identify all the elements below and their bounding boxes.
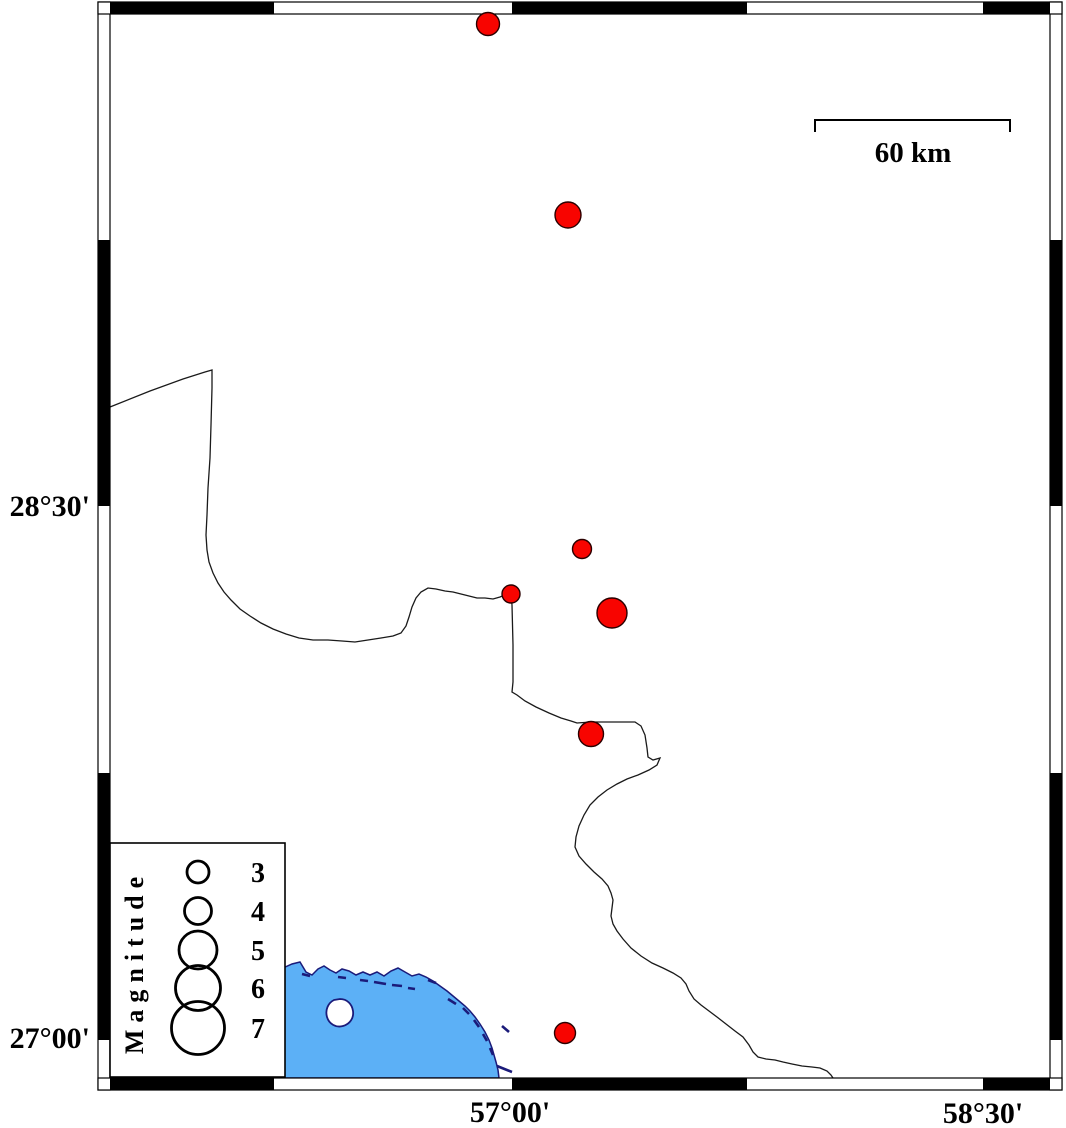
water-polygon [283, 962, 499, 1078]
earthquake-marker [579, 722, 604, 747]
coast-dash [338, 977, 346, 978]
coast-dash [408, 988, 415, 989]
frame-black-segment [512, 1078, 747, 1090]
legend-value: 6 [251, 974, 265, 1005]
earthquake-marker [555, 1023, 576, 1044]
scale-bar-bracket [815, 120, 1010, 132]
magnitude-legend: Magnitude 34567 [110, 843, 285, 1077]
legend-value: 7 [251, 1014, 265, 1045]
legend-value: 5 [251, 936, 265, 967]
water-group [283, 962, 512, 1078]
earthquake-markers [477, 13, 628, 1044]
earthquake-marker [555, 202, 581, 228]
frame-black-segment [512, 2, 747, 14]
map-figure: 60 km Magnitude 34567 28°30' 27°00' 57°0… [0, 0, 1066, 1128]
frame-black-segment [98, 773, 110, 1040]
legend-title: Magnitude [120, 870, 149, 1054]
frame-black-segment [983, 1078, 1050, 1090]
coast-dash [497, 1066, 512, 1072]
map-canvas: 60 km Magnitude 34567 28°30' 27°00' 57°0… [0, 0, 1066, 1128]
coast-dash [392, 985, 402, 986]
frame-black-segment [98, 240, 110, 506]
legend-value: 4 [251, 897, 265, 928]
island [326, 999, 353, 1027]
frame-black-segment [1050, 773, 1062, 1040]
frame-black-segment [983, 2, 1050, 14]
frame-black-segment [110, 1078, 274, 1090]
coast-dash [360, 980, 368, 981]
lon-label-5700: 57°00' [470, 1096, 550, 1128]
coast-dash [502, 1026, 509, 1032]
lat-label-2830: 28°30' [10, 490, 90, 523]
scale-bar: 60 km [815, 120, 1010, 169]
earthquake-marker [502, 585, 520, 603]
frame-black-segment [110, 2, 274, 14]
scale-bar-label: 60 km [875, 137, 952, 169]
lat-label-2700: 27°00' [10, 1022, 90, 1055]
earthquake-marker [573, 540, 592, 559]
legend-value: 3 [251, 858, 265, 889]
frame-black-segment [1050, 240, 1062, 506]
earthquake-marker [477, 13, 500, 36]
earthquake-marker [597, 598, 627, 628]
lon-label-5830: 58°30' [943, 1097, 1023, 1128]
